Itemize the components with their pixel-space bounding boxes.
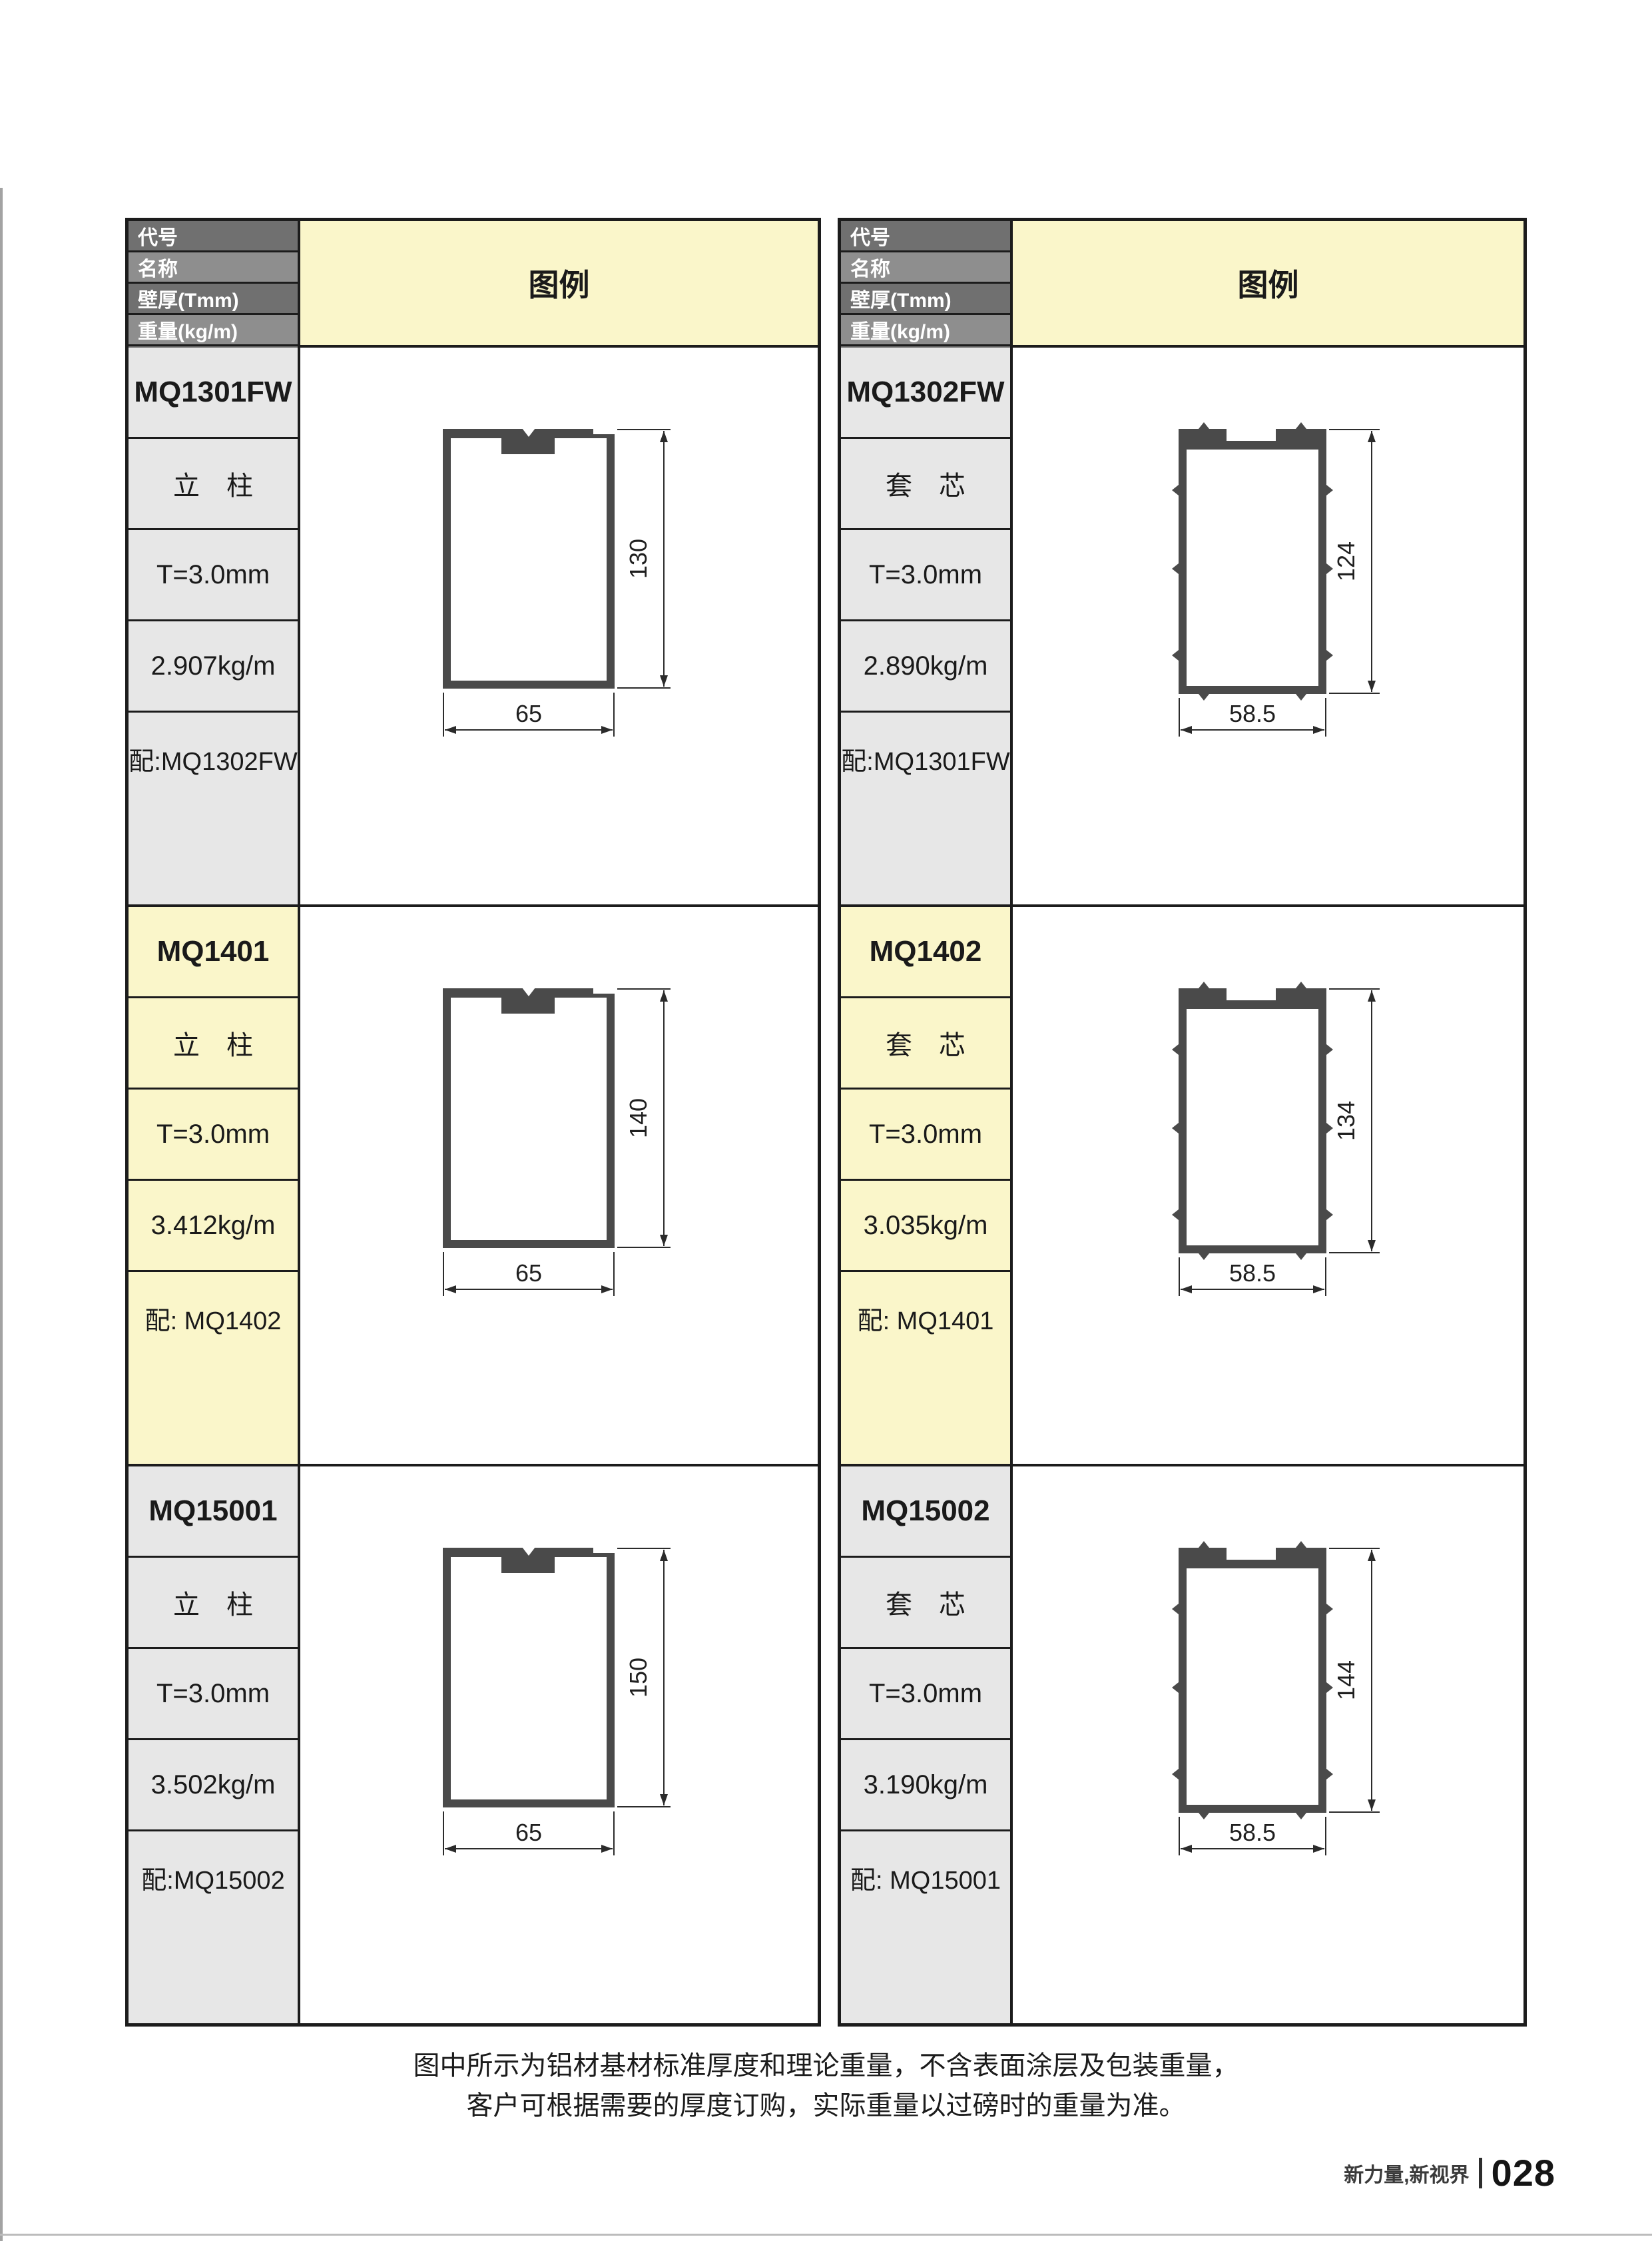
height-dim-label: 150	[625, 1658, 652, 1698]
header-label-column: 代号 名称 壁厚(Tmm) 重量(kg/m) 配套	[841, 221, 1013, 345]
header-cell-weight: 重量(kg/m)	[129, 315, 298, 346]
diagram-cell: 14065	[300, 907, 818, 1464]
profile-diagram: 14065	[443, 979, 676, 1303]
name-cell: 套 芯	[841, 439, 1010, 530]
profile-svg: 13065	[443, 420, 676, 741]
width-dim-label: 65	[515, 1819, 541, 1846]
profile-top-rib	[501, 1557, 555, 1573]
height-dim-label: 144	[1332, 1660, 1360, 1700]
header-label-column: 代号 名称 壁厚(Tmm) 重量(kg/m) 配套	[129, 221, 300, 345]
profile-outline	[1179, 429, 1326, 694]
profile-svg: 14065	[443, 979, 676, 1300]
header-cell-code: 代号	[841, 221, 1010, 252]
profile-outline	[443, 988, 615, 1248]
height-dim-label: 140	[625, 1098, 652, 1138]
profile-outline	[1179, 988, 1326, 1253]
name-cell: 立 柱	[129, 439, 298, 530]
page-edge-strip	[0, 188, 3, 2241]
thickness-cell: T=3.0mm	[841, 1090, 1010, 1181]
height-dim-label: 124	[1332, 541, 1360, 581]
profile-svg: 12458.5	[1152, 420, 1385, 741]
profile-section: MQ1402 套 芯 T=3.0mm 3.035kg/m 配: MQ1401 1…	[841, 907, 1523, 1466]
thickness-cell: T=3.0mm	[129, 1649, 298, 1740]
name-cell: 立 柱	[129, 998, 298, 1090]
label-column: MQ15001 立 柱 T=3.0mm 3.502kg/m 配:MQ15002	[129, 1466, 300, 2023]
header-cell-name: 名称	[841, 252, 1010, 284]
weight-cell: 2.907kg/m	[129, 621, 298, 713]
code-cell: MQ15001	[129, 1466, 298, 1558]
code-cell: MQ1302FW	[841, 348, 1010, 439]
catalog-page: 代号 名称 壁厚(Tmm) 重量(kg/m) 配套 图例 MQ1301FW 立 …	[0, 0, 1652, 2241]
diagram-cell: 12458.5	[1013, 348, 1523, 904]
profile-svg: 14458.5	[1152, 1538, 1385, 1859]
width-dim-label: 58.5	[1229, 700, 1275, 727]
diagram-cell: 15065	[300, 1466, 818, 2023]
code-cell: MQ1301FW	[129, 348, 298, 439]
brand-slogan: 新力量,新视界	[1344, 2158, 1469, 2188]
profile-section: MQ15002 套 芯 T=3.0mm 3.190kg/m 配: MQ15001…	[841, 1466, 1523, 2023]
width-dim-label: 58.5	[1229, 1819, 1275, 1846]
table-header: 代号 名称 壁厚(Tmm) 重量(kg/m) 配套 图例	[129, 221, 818, 348]
code-cell: MQ15002	[841, 1466, 1010, 1558]
match-cell: 配:MQ15002	[129, 1831, 298, 2023]
header-cell-code: 代号	[129, 221, 298, 252]
profile-outline	[443, 1548, 615, 1807]
profile-outline	[443, 429, 615, 689]
page-number: 028	[1492, 2151, 1555, 2194]
weight-cell: 3.412kg/m	[129, 1181, 298, 1272]
weight-cell: 3.502kg/m	[129, 1740, 298, 1831]
profile-section: MQ1301FW 立 柱 T=3.0mm 2.907kg/m 配:MQ1302F…	[129, 348, 818, 907]
width-dim-label: 65	[515, 700, 541, 727]
profile-diagram: 14458.5	[1152, 1538, 1385, 1863]
diagram-cell: 13458.5	[1013, 907, 1523, 1464]
match-cell: 配:MQ1302FW	[129, 713, 298, 904]
match-cell: 配: MQ15001	[841, 1831, 1010, 2023]
profile-diagram: 12458.5	[1152, 420, 1385, 744]
footnote-line-2: 客户可根据需要的厚度订购，实际重量以过磅时的重量为准。	[0, 2086, 1652, 2126]
label-column: MQ1302FW 套 芯 T=3.0mm 2.890kg/m 配:MQ1301F…	[841, 348, 1013, 904]
header-cell-weight: 重量(kg/m)	[841, 315, 1010, 346]
weight-cell: 3.190kg/m	[841, 1740, 1010, 1831]
match-cell: 配: MQ1401	[841, 1272, 1010, 1464]
weight-cell: 3.035kg/m	[841, 1181, 1010, 1272]
profile-diagram: 13458.5	[1152, 979, 1385, 1303]
code-cell: MQ1402	[841, 907, 1010, 998]
profile-section: MQ15001 立 柱 T=3.0mm 3.502kg/m 配:MQ15002 …	[129, 1466, 818, 2023]
legend-header: 图例	[1013, 221, 1523, 345]
label-column: MQ1301FW 立 柱 T=3.0mm 2.907kg/m 配:MQ1302F…	[129, 348, 300, 904]
profile-diagram: 15065	[443, 1538, 676, 1863]
header-cell-thickness: 壁厚(Tmm)	[841, 284, 1010, 315]
profile-section: MQ1401 立 柱 T=3.0mm 3.412kg/m 配: MQ1402 1…	[129, 907, 818, 1466]
profile-table-right: 代号 名称 壁厚(Tmm) 重量(kg/m) 配套 图例 MQ1302FW 套 …	[838, 218, 1527, 2027]
name-cell: 立 柱	[129, 1558, 298, 1649]
height-dim-label: 134	[1332, 1101, 1360, 1141]
match-cell: 配:MQ1301FW	[841, 713, 1010, 904]
label-column: MQ1401 立 柱 T=3.0mm 3.412kg/m 配: MQ1402	[129, 907, 300, 1464]
match-cell: 配: MQ1402	[129, 1272, 298, 1464]
footnote-line-1: 图中所示为铝材基材标准厚度和理论重量，不含表面涂层及包装重量，	[0, 2046, 1652, 2086]
thickness-cell: T=3.0mm	[129, 530, 298, 621]
table-header: 代号 名称 壁厚(Tmm) 重量(kg/m) 配套 图例	[841, 221, 1523, 348]
profile-svg: 15065	[443, 1538, 676, 1859]
header-cell-thickness: 壁厚(Tmm)	[129, 284, 298, 315]
profile-outline	[1179, 1548, 1326, 1813]
name-cell: 套 芯	[841, 998, 1010, 1090]
width-dim-label: 58.5	[1229, 1259, 1275, 1287]
legend-header: 图例	[300, 221, 818, 345]
header-cell-name: 名称	[129, 252, 298, 284]
diagram-cell: 13065	[300, 348, 818, 904]
label-column: MQ1402 套 芯 T=3.0mm 3.035kg/m 配: MQ1401	[841, 907, 1013, 1464]
profile-section: MQ1302FW 套 芯 T=3.0mm 2.890kg/m 配:MQ1301F…	[841, 348, 1523, 907]
profile-diagram: 13065	[443, 420, 676, 744]
name-cell: 套 芯	[841, 1558, 1010, 1649]
profile-table-left: 代号 名称 壁厚(Tmm) 重量(kg/m) 配套 图例 MQ1301FW 立 …	[125, 218, 821, 2027]
thickness-cell: T=3.0mm	[841, 530, 1010, 621]
height-dim-label: 130	[625, 539, 652, 579]
width-dim-label: 65	[515, 1259, 541, 1287]
footnote: 图中所示为铝材基材标准厚度和理论重量，不含表面涂层及包装重量， 客户可根据需要的…	[0, 2046, 1652, 2126]
label-column: MQ15002 套 芯 T=3.0mm 3.190kg/m 配: MQ15001	[841, 1466, 1013, 2023]
weight-cell: 2.890kg/m	[841, 621, 1010, 713]
thickness-cell: T=3.0mm	[129, 1090, 298, 1181]
diagram-cell: 14458.5	[1013, 1466, 1523, 2023]
profile-svg: 13458.5	[1152, 979, 1385, 1300]
thickness-cell: T=3.0mm	[841, 1649, 1010, 1740]
profile-top-rib	[501, 998, 555, 1014]
profile-top-rib	[501, 438, 555, 454]
footer-divider	[1479, 2158, 1482, 2188]
bottom-rule	[0, 2234, 1652, 2236]
code-cell: MQ1401	[129, 907, 298, 998]
page-footer: 新力量,新视界 028	[1344, 2151, 1555, 2194]
